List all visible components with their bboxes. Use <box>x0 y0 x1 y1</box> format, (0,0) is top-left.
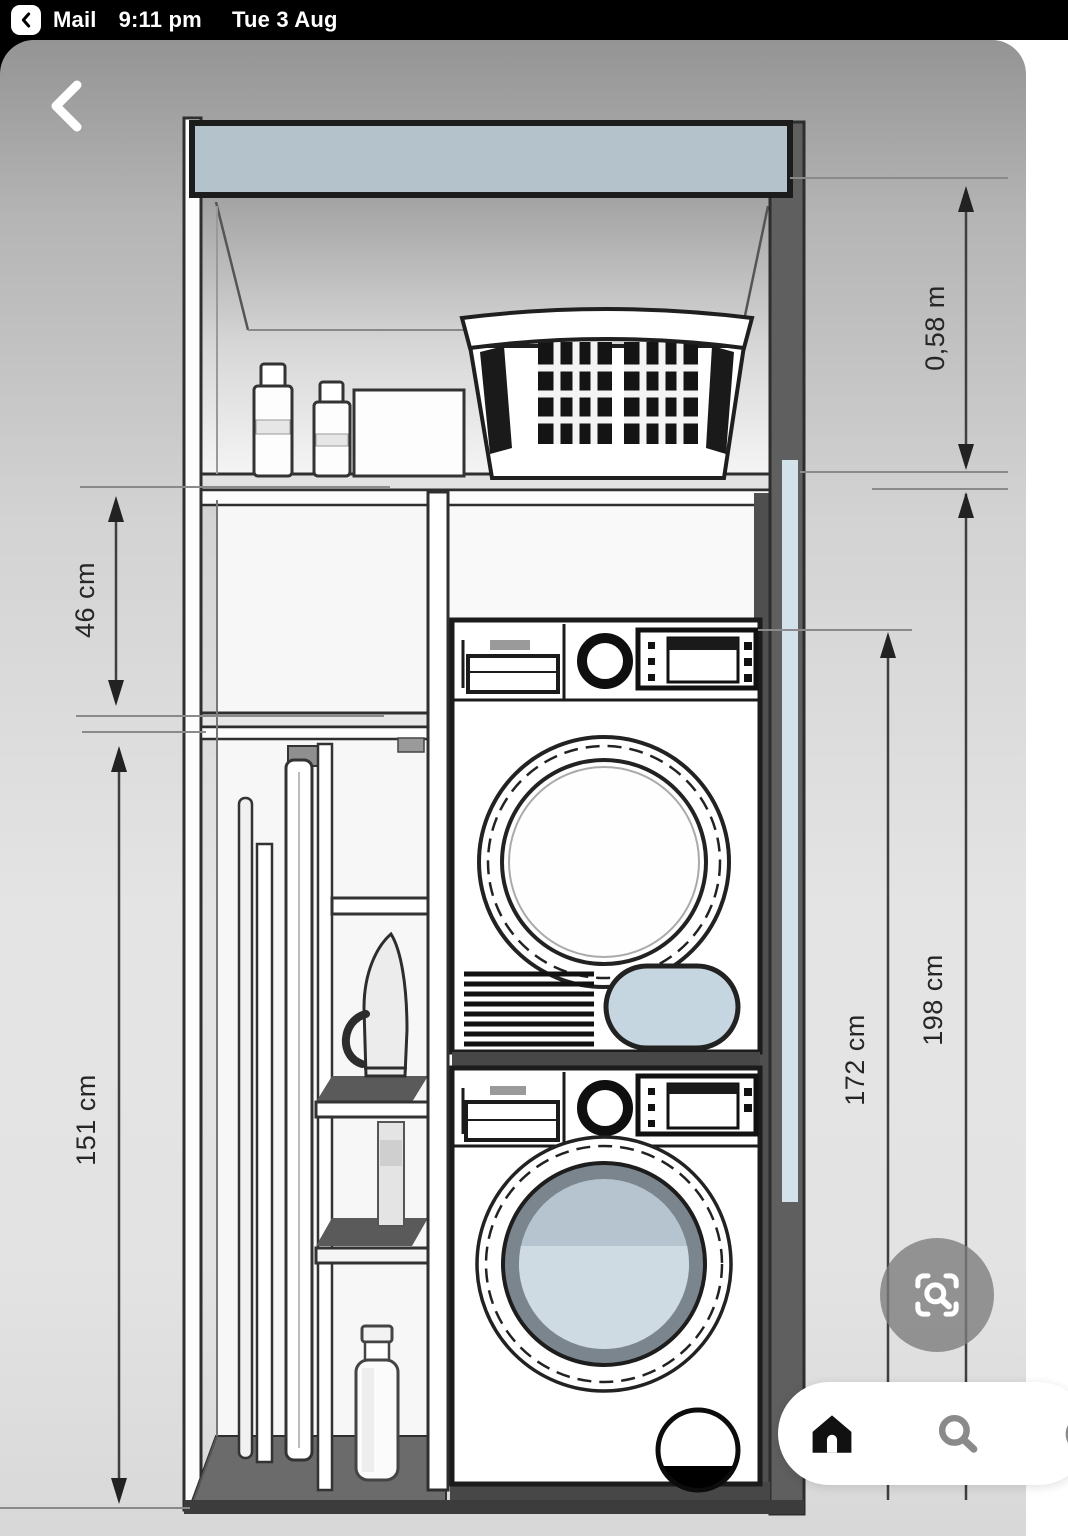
dryer-knob <box>582 638 628 684</box>
dimension-label-058m: 0,58 m <box>920 285 950 371</box>
laundry-cabinet-diagram: 0,58 m 46 cm 151 cm 172 cm 198 cm <box>0 40 1026 1536</box>
chevron-left-icon <box>46 78 86 134</box>
dryer <box>452 620 760 1068</box>
pin-image[interactable]: 0,58 m 46 cm 151 cm 172 cm 198 cm <box>0 40 1026 1536</box>
status-bar: Mail 9:11 pm Tue 3 Aug <box>0 0 1068 40</box>
visual-search-lens-icon <box>910 1268 964 1322</box>
partial-circle-icon <box>1043 1411 1068 1457</box>
cabinet-left-panel <box>184 118 201 1510</box>
home-icon <box>809 1411 855 1457</box>
storage-box <box>354 390 464 476</box>
search-button[interactable] <box>935 1411 981 1457</box>
back-to-app-label[interactable]: Mail <box>53 7 97 33</box>
search-icon <box>935 1411 981 1457</box>
dimension-label-46cm: 46 cm <box>70 562 100 638</box>
screen: Mail 9:11 pm Tue 3 Aug <box>0 0 1068 1536</box>
dimension-label-198cm: 198 cm <box>918 954 948 1046</box>
status-date: Tue 3 Aug <box>232 7 338 33</box>
broom-handle <box>239 798 252 1458</box>
bottom-nav-bar <box>778 1382 1068 1485</box>
dryer-door <box>502 760 706 964</box>
partial-right-button[interactable] <box>1043 1411 1068 1457</box>
dimension-label-172cm: 172 cm <box>840 1014 870 1106</box>
home-button[interactable] <box>809 1411 855 1457</box>
washer <box>452 1068 760 1492</box>
back-button[interactable] <box>46 78 86 139</box>
folded-board <box>257 844 272 1462</box>
cabinet-top-pelmet <box>192 123 790 195</box>
back-to-app-button[interactable] <box>11 5 41 35</box>
visual-search-button[interactable] <box>880 1238 994 1352</box>
small-bottle <box>378 1122 404 1226</box>
dryer-condenser-tray <box>606 966 738 1048</box>
washer-knob <box>582 1085 628 1131</box>
status-time: 9:11 pm <box>119 7 202 33</box>
dryer-brand-mark <box>490 640 530 650</box>
chevron-left-icon <box>16 10 36 30</box>
laundry-basket <box>462 309 752 478</box>
dryer-drawer <box>468 656 558 692</box>
washer-brand-mark <box>490 1086 526 1095</box>
dimension-label-151cm: 151 cm <box>71 1074 101 1166</box>
